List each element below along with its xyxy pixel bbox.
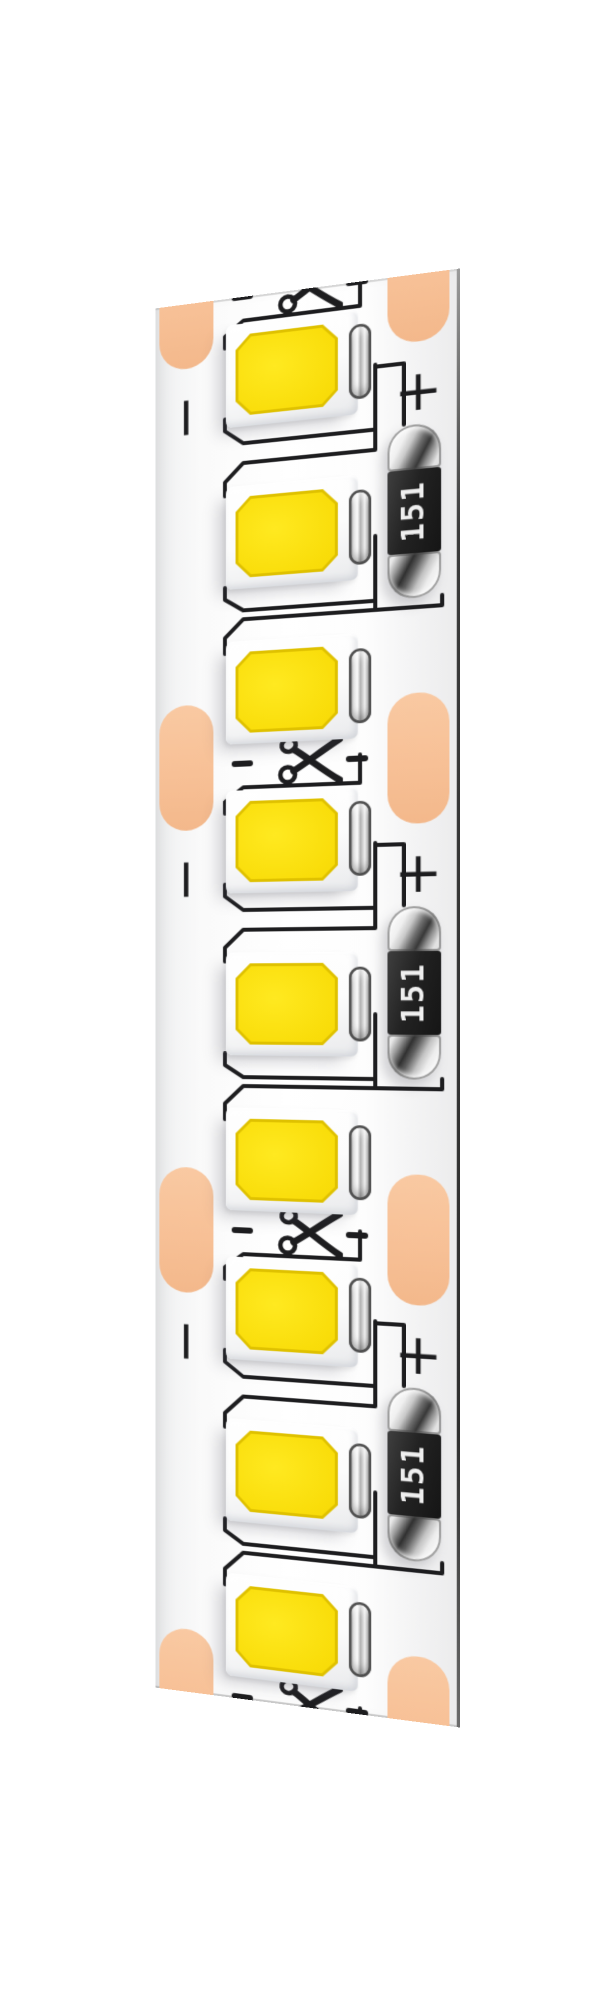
led-die-yellow <box>236 488 338 579</box>
led-chip <box>226 1573 358 1692</box>
led-electrode <box>349 648 371 724</box>
polarity-plus-label: + <box>396 1331 441 1381</box>
led-die-yellow <box>236 1268 338 1356</box>
led-die-yellow <box>236 646 338 734</box>
strip-side-edge <box>457 268 460 1727</box>
led-chip <box>226 633 358 744</box>
led-chip <box>226 1256 358 1367</box>
led-die-yellow <box>236 1585 338 1679</box>
strip-segment: − + 151 <box>156 268 460 767</box>
cut-dash-left <box>232 760 253 766</box>
smd-resistor: 151 <box>387 422 441 600</box>
product-photo-led-strip: − + 151 − + <box>0 0 600 2000</box>
led-die-yellow <box>236 798 338 883</box>
polarity-minus-label: − <box>165 1321 207 1363</box>
polarity-plus-label: + <box>396 849 441 897</box>
perspective-scene: − + 151 − + <box>0 0 600 2000</box>
led-electrode <box>349 489 371 566</box>
resistor-body: 151 <box>387 467 441 555</box>
led-electrode <box>349 1125 371 1200</box>
led-electrode <box>349 1443 371 1520</box>
led-chip <box>226 786 358 894</box>
led-strip: − + 151 − + <box>156 268 460 1727</box>
cut-dash-left <box>232 1227 253 1233</box>
led-chip <box>226 475 358 590</box>
led-electrode <box>349 967 371 1042</box>
led-die-yellow <box>236 323 338 417</box>
cut-dash-right <box>346 755 368 762</box>
led-electrode <box>349 801 371 876</box>
led-die-yellow <box>236 1118 338 1203</box>
led-chip <box>226 952 358 1057</box>
strip-segment: − + 151 <box>156 1227 460 1726</box>
polarity-plus-label: + <box>396 365 441 417</box>
resistor-solder-cap-bottom <box>387 551 441 600</box>
resistor-solder-cap-top <box>387 906 441 952</box>
resistor-solder-cap-bottom <box>387 1514 441 1564</box>
resistor-solder-cap-top <box>387 422 441 472</box>
polarity-minus-label: − <box>165 396 207 440</box>
resistor-body: 151 <box>387 1431 441 1519</box>
cut-dash-right <box>346 1232 368 1239</box>
led-electrode <box>349 323 371 400</box>
led-electrode <box>349 1277 371 1353</box>
led-electrode <box>349 1601 371 1678</box>
polarity-minus-label: − <box>165 860 207 900</box>
led-chip <box>226 1418 358 1533</box>
scissors-icon <box>277 1206 343 1261</box>
resistor-body: 151 <box>387 951 441 1035</box>
smd-resistor: 151 <box>387 906 441 1080</box>
led-die-yellow <box>236 963 338 1046</box>
scissors-icon <box>277 268 343 318</box>
resistor-solder-cap-top <box>387 1386 441 1435</box>
strip-segment: − + 151 <box>156 754 460 1240</box>
led-chip <box>226 1107 358 1215</box>
smd-resistor: 151 <box>387 1386 441 1564</box>
led-die-yellow <box>236 1430 338 1521</box>
resistor-solder-cap-bottom <box>387 1035 441 1080</box>
led-chip <box>226 309 358 428</box>
